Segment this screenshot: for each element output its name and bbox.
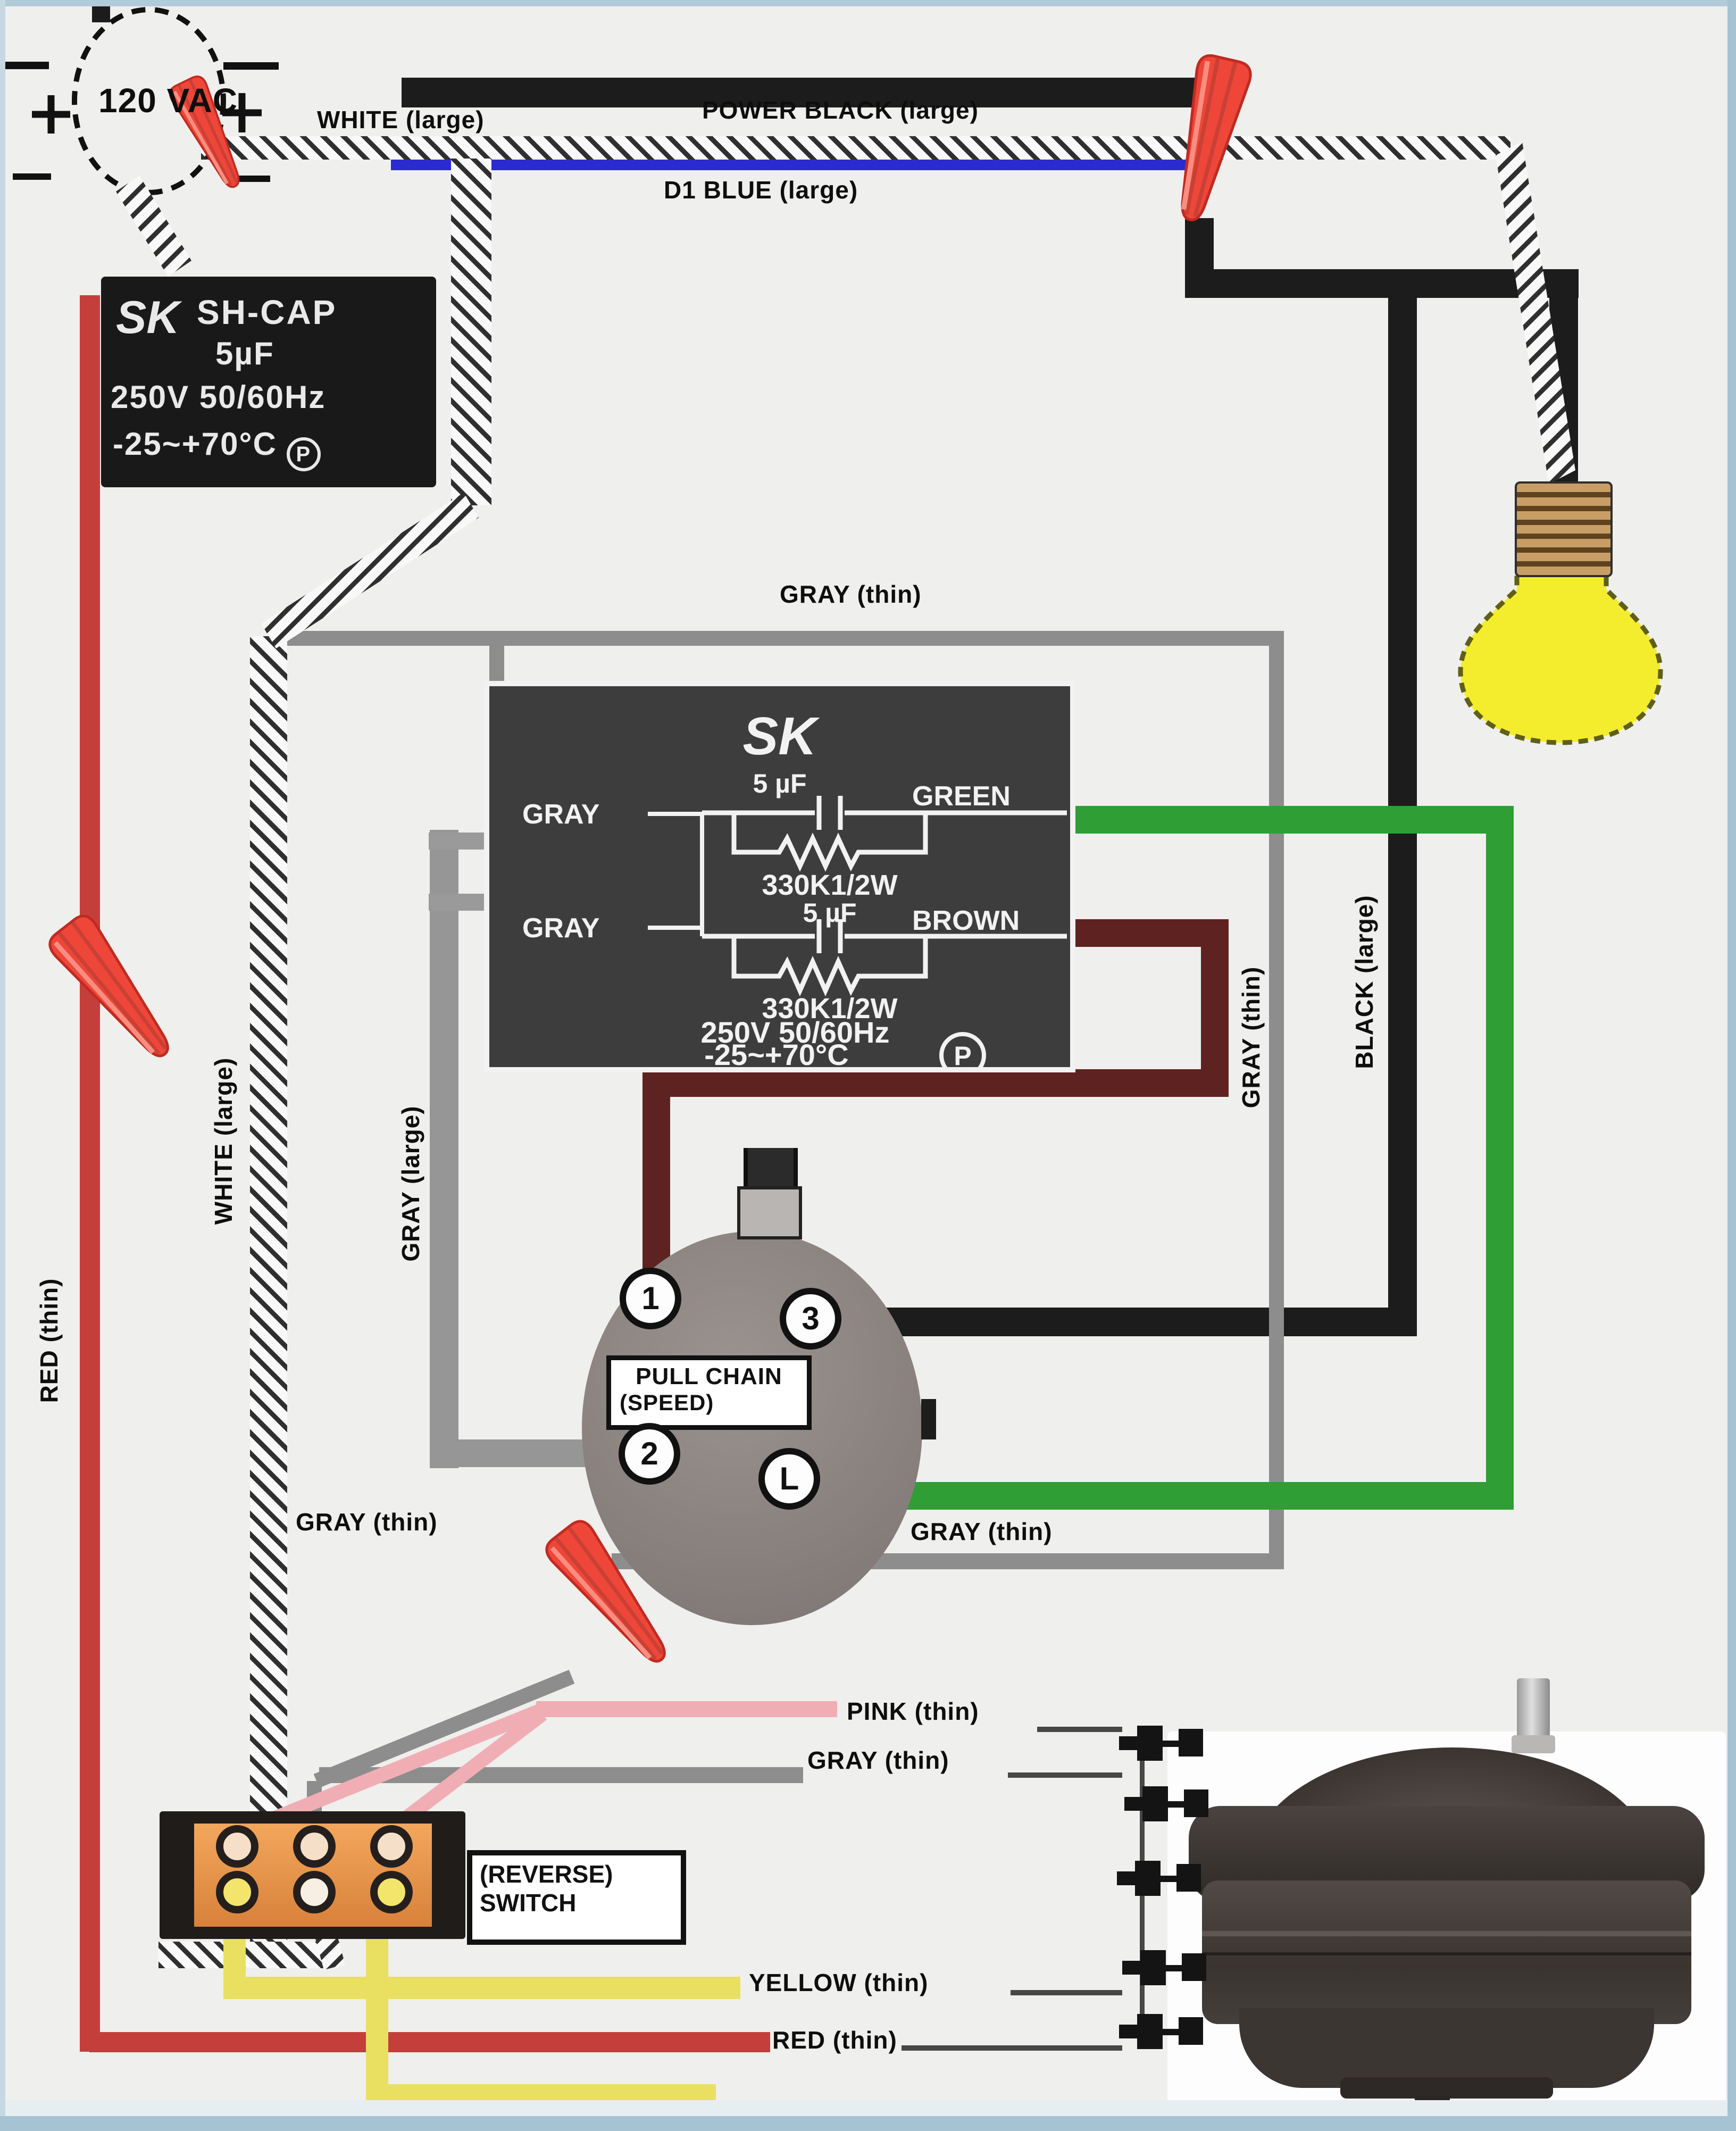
protected-mark: P [954, 1041, 971, 1067]
reverse-terminal [216, 1825, 258, 1868]
reverse-terminal [370, 1871, 413, 1913]
light-bulb [1460, 570, 1660, 743]
page-border-top [0, 0, 1736, 6]
plus-icon [32, 95, 70, 134]
connector-pink [1119, 1726, 1203, 1761]
reverse-terminal [293, 1871, 336, 1913]
pink-thin-label: PINK (thin) [847, 1697, 979, 1726]
terminal-1: 1 [620, 1268, 681, 1329]
reverse-terminal [370, 1825, 413, 1868]
gray-thin-bottom-left-label: GRAY (thin) [296, 1508, 438, 1536]
white-top-label: WHITE (large) [317, 105, 485, 134]
resistor1-value: 330K1/2W [762, 869, 897, 901]
gray-lead-label-1: GRAY [522, 799, 599, 830]
sh-cap-rating: 250V 50/60Hz [111, 379, 325, 415]
fan-capacitor: SK 5 µF GREEN GRAY 330K1/2W GRAY 5 µF BR… [489, 686, 1070, 1067]
connector-gray [1124, 1786, 1208, 1821]
bulb-glass [1460, 570, 1660, 743]
terminal-2: 2 [619, 1423, 680, 1485]
black-large-right-label: BLACK (large) [1350, 895, 1379, 1069]
connector-red [1119, 2014, 1203, 2049]
gray-thin-top-label: GRAY (thin) [780, 580, 922, 609]
reverse-switch-label-box: (REVERSE) SWITCH [467, 1850, 686, 1945]
sh-cap-name: SH-CAP [197, 293, 337, 332]
sk-logo: SK [116, 292, 179, 344]
gray-large-left-label: GRAY (large) [396, 1105, 425, 1261]
resistor2-symbol [734, 936, 925, 990]
brown-lead-label: BROWN [912, 905, 1020, 936]
power-black-label: POWER BLACK (large) [702, 96, 979, 124]
reverse-terminal [293, 1825, 336, 1868]
bulb-base [1515, 481, 1613, 577]
switch-side-tab [921, 1399, 936, 1439]
page-border-bottom-light [0, 2100, 1736, 2117]
connector-yellow [1122, 1950, 1206, 1985]
sh-cap-temp-row: -25~+70°CP [113, 426, 321, 471]
gray-lead-lines [648, 813, 702, 936]
pull-chain-label-box: PULL CHAIN (SPEED) [606, 1355, 812, 1430]
wire-nut-power [1164, 53, 1253, 226]
fan-capacitor-schematic: SK 5 µF GREEN GRAY 330K1/2W GRAY 5 µF BR… [489, 686, 1070, 1067]
gray-thin-center-label: GRAY (thin) [807, 1746, 949, 1775]
red-thin-bottom-label: RED (thin) [772, 2026, 897, 2054]
pull-chain-label-line2: (SPEED) [620, 1390, 807, 1416]
source-voltage-label: 120 VAC [98, 81, 238, 120]
wiring-diagram: SK SH-CAP 5µF 250V 50/60Hz -25~+70°CP SK… [0, 0, 1736, 2131]
reverse-switch-label-line2: SWITCH [480, 1888, 681, 1917]
pull-chain-label-line1: PULL CHAIN [611, 1363, 807, 1390]
cap2-value: 5 µF [803, 898, 856, 928]
page-border-right [1727, 0, 1736, 2131]
terminal-L: L [758, 1448, 820, 1510]
page-border-bottom [0, 2116, 1736, 2131]
page-border-left [0, 0, 5, 2131]
sh-cap-capacitor: SK SH-CAP 5µF 250V 50/60Hz -25~+70°CP [101, 277, 436, 487]
sk-logo: SK [743, 706, 821, 766]
red-thin-left-label: RED (thin) [35, 1278, 63, 1403]
resistor1-symbol [734, 813, 925, 866]
gray-thin-right-label: GRAY (thin) [1237, 967, 1265, 1109]
cap1-symbol [702, 796, 1067, 830]
green-lead-label: GREEN [912, 781, 1011, 812]
gray-lead-label-2: GRAY [522, 913, 599, 944]
connector-middle [1117, 1861, 1201, 1896]
switch-stem-dark [744, 1148, 798, 1188]
sh-cap-value: 5µF [215, 335, 274, 372]
white-large-left-label: WHITE (large) [209, 1058, 238, 1225]
wire-nut-left [45, 911, 185, 1070]
gray-thin-bottom-right-label: GRAY (thin) [911, 1517, 1053, 1546]
cap1-value: 5 µF [753, 769, 806, 798]
d1-blue-label: D1 BLUE (large) [664, 176, 858, 204]
white-wire-under-cap-diagonal [261, 493, 479, 648]
switch-stem-light [737, 1186, 802, 1239]
cap-temp: -25~+70°C [704, 1038, 848, 1067]
reverse-terminal [216, 1871, 258, 1913]
yellow-thin-label: YELLOW (thin) [749, 1968, 928, 1997]
terminal-3: 3 [780, 1288, 841, 1350]
protected-mark-icon: P [287, 437, 321, 471]
sh-cap-temp: -25~+70°C [113, 426, 277, 462]
reverse-switch-label-line1: (REVERSE) [480, 1860, 681, 1888]
white-wire-to-bulb-diagonal [1496, 141, 1575, 484]
